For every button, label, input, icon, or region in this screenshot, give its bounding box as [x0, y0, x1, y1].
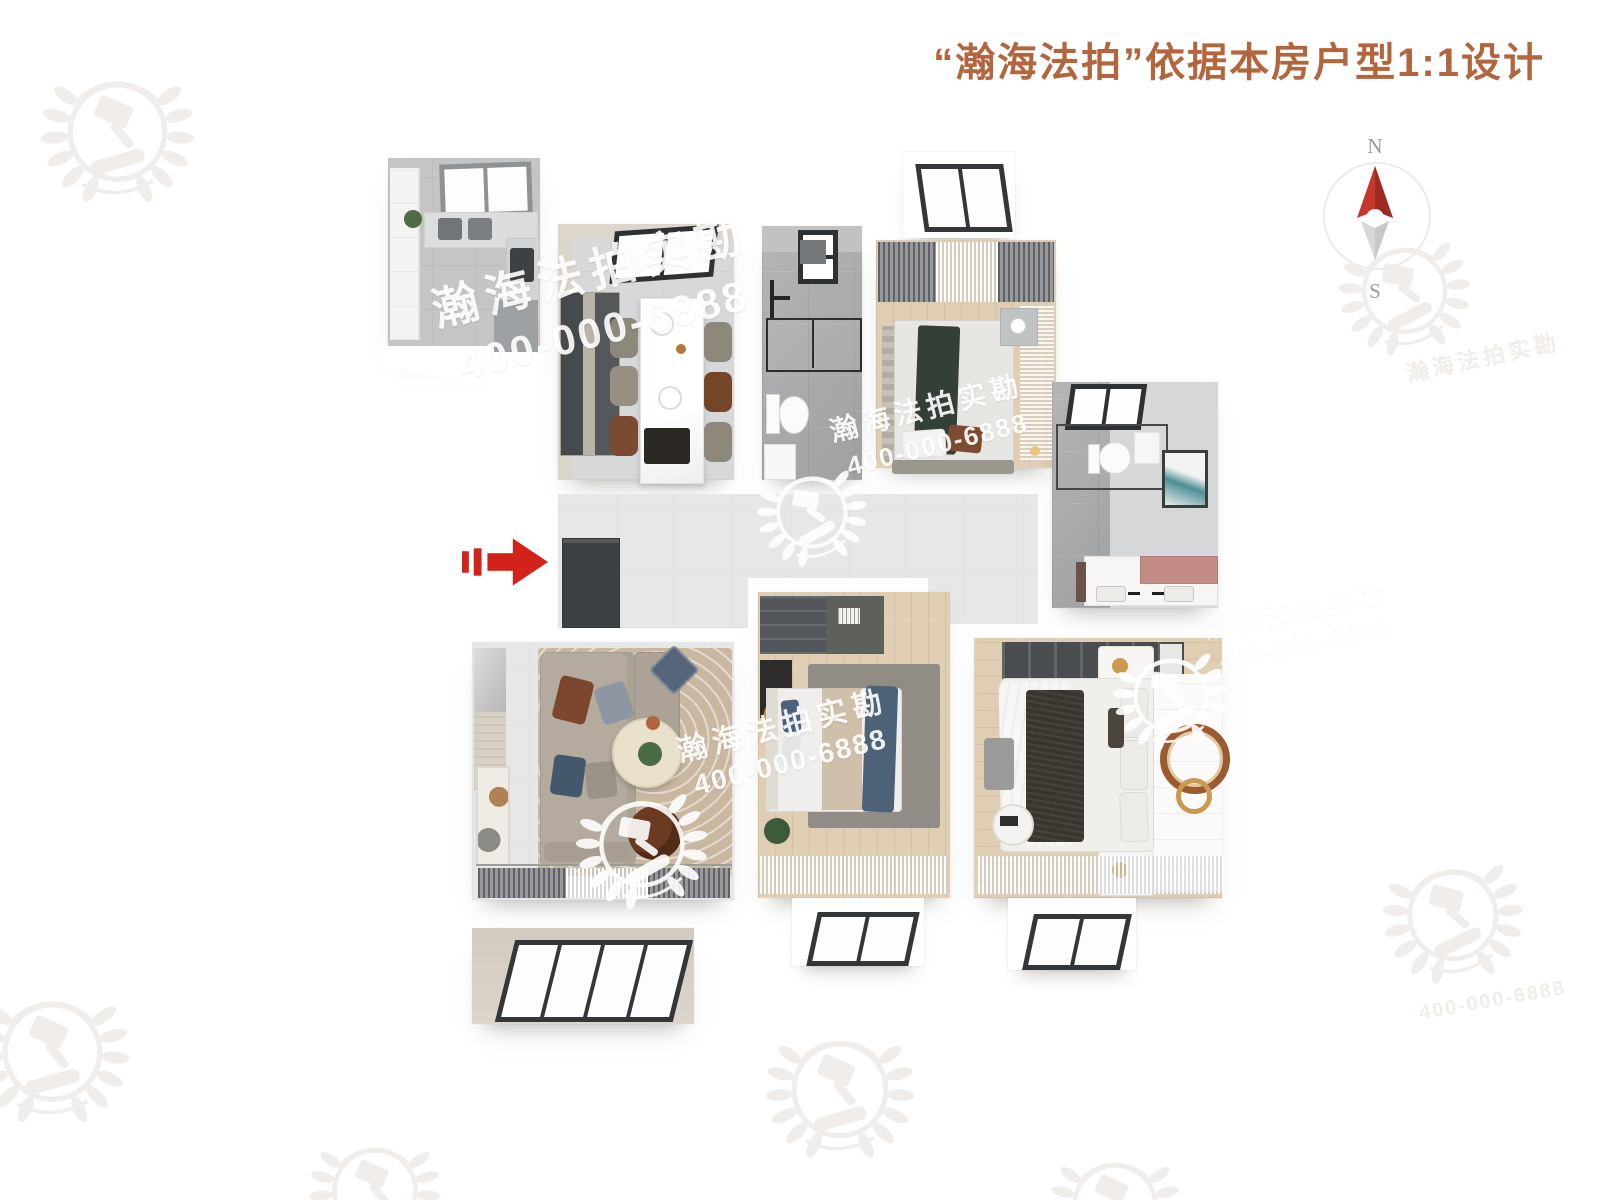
window-pane [812, 917, 865, 961]
bedroom-middle-wardrobe-dark [760, 596, 826, 654]
window-pane [1105, 389, 1141, 425]
faint-watermark-text: 400-000-6888 [1417, 977, 1567, 1025]
window-pane [615, 233, 664, 279]
window-pane [1074, 919, 1126, 965]
compass-needle-icon [1349, 164, 1401, 264]
kitchen-angled-wall [380, 346, 544, 396]
dining-chair [610, 416, 638, 456]
watermark-text-line1: 瀚海法拍实勘 [1200, 572, 1390, 647]
bedroom-middle-blanket-beige [822, 688, 862, 810]
hallway-entry-cabinet [562, 538, 620, 628]
watermark-text-line2: 400-000-6888 [1217, 612, 1392, 675]
bedroom-middle-plant [764, 818, 790, 844]
kitchen-cooktop [510, 248, 534, 282]
balcony-floor-window [495, 940, 693, 1022]
laurel-gavel-logo-icon [300, 1125, 450, 1200]
dining-plate [658, 386, 682, 410]
window-pane [444, 168, 485, 213]
bedroom-north-pillow [901, 428, 947, 459]
kitchen-plant [404, 210, 422, 228]
bedroom-middle-throw-blue [862, 685, 898, 812]
laurel-gavel-logo-icon [0, 975, 140, 1150]
bath2-sink-left [1096, 586, 1126, 602]
kitchen-sink-right [468, 218, 492, 240]
compass: N S [1315, 134, 1435, 304]
compass-north-label: N [1315, 134, 1435, 159]
bath1-toilet-tank [766, 394, 780, 434]
faint-watermark-text: 瀚海法拍实勘 [1403, 325, 1562, 389]
dining-cup [676, 344, 686, 354]
laurel-gavel-logo-icon [1362, 832, 1547, 1017]
bedroom-middle-books [838, 608, 860, 624]
bath2-wall-art [1162, 450, 1208, 508]
dining-tray [644, 428, 690, 464]
master-pillow-dark [1108, 708, 1124, 748]
bath1-shower-arm [770, 296, 790, 300]
dining-chair [704, 422, 732, 462]
kitchen-ceiling-window [439, 161, 533, 218]
laurel-gavel-logo-icon [30, 55, 205, 230]
bedroom-middle-pillow-blue [780, 699, 801, 733]
living-table-plant [638, 742, 662, 766]
window-pane [487, 167, 528, 212]
bedroom-middle-headboard [766, 688, 778, 810]
living-table-bowl [646, 716, 660, 730]
master-window [1022, 914, 1132, 970]
bath2-faucet-right [1152, 592, 1164, 595]
living-pillow-blue [549, 754, 586, 798]
bedroom-middle-sheer-curtain [760, 856, 948, 894]
master-blanket-dark [1026, 690, 1084, 842]
living-sheer-curtain [566, 868, 648, 898]
living-curtain-right [648, 868, 730, 898]
bath2-vanity-side-panel [1076, 562, 1086, 602]
faint-watermark [30, 55, 205, 235]
bedroom-middle-window [806, 912, 919, 966]
living-sofa-foot [544, 842, 630, 862]
faint-watermark: 400-000-6888 [1362, 832, 1548, 1022]
master-pillow [1119, 792, 1149, 843]
kitchen-sink-left [438, 218, 462, 240]
bedroom-north-curtain-left [878, 242, 936, 302]
bedroom-north-curtain-right [998, 242, 1054, 302]
window-pane [921, 169, 966, 227]
entrance-arrow-right-icon [462, 536, 550, 588]
living-ottoman [628, 806, 682, 860]
faint-watermark [1040, 1140, 1190, 1200]
dining-plate [650, 312, 674, 336]
living-tv-wall-marble [474, 648, 506, 712]
bath2-pink-cabinet [1140, 556, 1218, 584]
bedroom-middle-pillow-white [781, 735, 802, 766]
kitchen-cabinets [390, 168, 420, 340]
bath1-shower-glass-divider [812, 318, 814, 368]
living-curtain-rod [476, 864, 732, 866]
window-pane [1070, 389, 1106, 425]
floor-plan-page: 瀚海法拍实勘 400-000-6888 瀚海法拍实勘 400-000-6888 … [0, 0, 1600, 1200]
living-curtain-left [478, 868, 566, 898]
bath1-shower-panel [800, 240, 826, 264]
master-pillow [1120, 740, 1148, 790]
dining-chair [610, 318, 638, 358]
faint-watermark [300, 1125, 450, 1200]
living-pillow-taupe [584, 761, 618, 800]
bedroom-north-headboard [892, 460, 1014, 474]
window-pane [860, 917, 913, 961]
window-pane [664, 230, 713, 276]
faint-watermark [755, 1015, 925, 1190]
bath2-sink-right [1164, 586, 1194, 602]
laurel-gavel-logo-icon [755, 1015, 925, 1185]
master-bench [984, 738, 1014, 790]
master-sheer-curtain [978, 856, 1224, 894]
bedroom-north-cup [1010, 318, 1026, 334]
dining-chair [704, 322, 732, 362]
bath1-vanity [764, 444, 796, 480]
master-lamp-north [1112, 658, 1128, 674]
compass-south-label: S [1315, 279, 1435, 304]
bedroom-north-skylight-window [915, 164, 1013, 232]
bath2-faucet-left [1128, 592, 1140, 595]
faint-watermark [0, 975, 140, 1155]
bedroom-north-pillow-brown [947, 424, 984, 453]
window-pane [962, 169, 1007, 227]
dining-chair [704, 372, 732, 412]
bath2-toilet-bowl [1099, 442, 1131, 474]
master-wall-ring-decor [1176, 778, 1212, 814]
bedroom-middle-wardrobe-olive [826, 596, 884, 654]
kitchen-dark-floor-patch [494, 300, 538, 352]
dining-skylight [609, 224, 718, 284]
bedroom-north-lamp [1030, 446, 1040, 456]
window-pane [1028, 919, 1080, 965]
bath2-cabinet [1134, 432, 1160, 464]
bedroom-north-sheer-curtain [936, 242, 998, 302]
laurel-gavel-logo-icon [1040, 1140, 1190, 1200]
bath1-shower-glass [766, 318, 862, 372]
master-table-book [1000, 816, 1018, 826]
living-artwork [476, 766, 510, 866]
dining-chair [610, 366, 638, 406]
page-title: “瀚海法拍”依据本房户型1:1设计 [933, 30, 1545, 88]
